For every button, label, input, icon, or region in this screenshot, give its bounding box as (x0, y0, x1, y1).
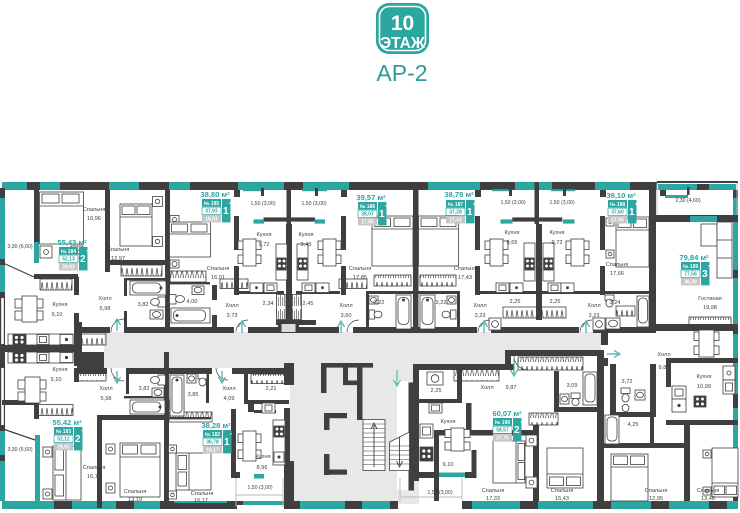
svg-text:Кухня: Кухня (53, 367, 68, 373)
svg-text:38,80 м2: 38,80 м2 (200, 190, 230, 199)
svg-text:*: * (229, 202, 231, 208)
svg-text:9,10: 9,10 (443, 462, 454, 468)
svg-text:4,25: 4,25 (628, 422, 639, 428)
svg-text:9,45: 9,45 (301, 242, 312, 248)
svg-text:46,39: 46,39 (684, 280, 697, 286)
svg-text:1,50 (3,00): 1,50 (3,00) (427, 490, 452, 496)
svg-text:17,66: 17,66 (610, 271, 624, 277)
svg-text:9,87: 9,87 (506, 385, 517, 391)
svg-text:9,89: 9,89 (659, 365, 670, 371)
svg-text:3,73: 3,73 (227, 313, 238, 319)
svg-text:9,65: 9,65 (507, 240, 518, 246)
svg-text:38,28 м2: 38,28 м2 (201, 421, 231, 430)
svg-text:3,23: 3,23 (475, 313, 486, 319)
svg-text:3,24: 3,24 (610, 300, 621, 306)
svg-text:16,17: 16,17 (206, 448, 219, 454)
svg-text:2,30 (4,60): 2,30 (4,60) (675, 198, 700, 204)
svg-text:Спальня: Спальня (107, 247, 129, 253)
svg-text:Спальня: Спальня (606, 262, 628, 268)
svg-text:№ 185: № 185 (204, 201, 220, 207)
svg-text:Спальня: Спальня (454, 266, 476, 272)
svg-text:Кухня: Кухня (256, 454, 271, 460)
svg-text:АР-2: АР-2 (376, 60, 427, 86)
svg-text:37,93: 37,93 (205, 209, 218, 215)
svg-text:№ 188: № 188 (610, 202, 626, 208)
svg-text:Холл: Холл (657, 352, 670, 358)
svg-text:*: * (635, 203, 637, 209)
svg-text:Кухня: Кухня (550, 230, 565, 236)
svg-text:39,10 м2: 39,10 м2 (606, 191, 636, 200)
svg-text:12,97: 12,97 (111, 256, 125, 262)
svg-text:Спальня: Спальня (645, 488, 667, 494)
svg-text:12,95: 12,95 (649, 496, 663, 502)
svg-text:№ 190: № 190 (495, 420, 511, 426)
svg-text:9,72: 9,72 (552, 240, 563, 246)
svg-text:29,92: 29,92 (57, 445, 70, 451)
svg-text:Гостиная: Гостиная (698, 296, 721, 302)
svg-text:1,50 (3,00): 1,50 (3,00) (250, 201, 275, 207)
svg-text:17,66: 17,66 (611, 218, 624, 224)
svg-text:1,50 (3,00): 1,50 (3,00) (301, 201, 326, 207)
svg-text:16,01: 16,01 (205, 217, 218, 223)
svg-text:15,43: 15,43 (555, 496, 569, 502)
svg-text:38,07: 38,07 (361, 212, 374, 218)
svg-text:Кухня: Кухня (441, 419, 456, 425)
svg-text:*: * (87, 250, 89, 256)
svg-text:Спальня: Спальня (482, 488, 504, 494)
svg-text:3,72: 3,72 (622, 379, 633, 385)
svg-text:52,13: 52,13 (62, 257, 75, 263)
svg-text:Холл: Холл (480, 385, 493, 391)
svg-text:29,93: 29,93 (62, 265, 75, 271)
svg-text:17,85: 17,85 (361, 220, 374, 226)
svg-text:39,57 м2: 39,57 м2 (356, 193, 386, 202)
svg-text:79,84 м2: 79,84 м2 (679, 253, 709, 262)
svg-text:3,22: 3,22 (436, 300, 447, 306)
svg-text:*: * (708, 265, 710, 271)
svg-text:2,25: 2,25 (431, 388, 442, 394)
svg-text:9,10: 9,10 (51, 377, 62, 383)
svg-text:58,57: 58,57 (496, 428, 509, 434)
svg-text:60,07 м2: 60,07 м2 (492, 409, 522, 418)
svg-text:9,72: 9,72 (259, 242, 270, 248)
svg-text:3,30 (6,60): 3,30 (6,60) (7, 244, 32, 250)
svg-text:Спальня: Спальня (551, 488, 573, 494)
svg-text:2,25: 2,25 (510, 299, 521, 305)
svg-text:Кухня: Кухня (257, 232, 272, 238)
svg-text:Холл: Холл (99, 386, 112, 392)
svg-text:2,34: 2,34 (263, 301, 274, 307)
svg-text:10: 10 (391, 12, 414, 35)
svg-text:77,56: 77,56 (684, 272, 697, 278)
svg-text:Спальня: Спальня (83, 207, 105, 213)
svg-text:16,73: 16,73 (87, 474, 101, 480)
svg-text:1,50 (3,00): 1,50 (3,00) (247, 485, 272, 491)
svg-text:17,85: 17,85 (353, 275, 367, 281)
svg-text:1,50 (3,00): 1,50 (3,00) (549, 200, 574, 206)
svg-text:2,45: 2,45 (303, 301, 314, 307)
svg-text:Холл: Холл (222, 386, 235, 392)
svg-text:Холл: Холл (473, 303, 486, 309)
svg-text:№ 183: № 183 (56, 429, 72, 435)
svg-text:3,60: 3,60 (341, 313, 352, 319)
svg-text:№ 182: № 182 (205, 432, 221, 438)
svg-text:10,99: 10,99 (697, 384, 711, 390)
svg-text:№ 186: № 186 (360, 204, 376, 210)
svg-text:Кухня: Кухня (53, 302, 68, 308)
svg-text:17,43: 17,43 (449, 218, 462, 224)
svg-text:16,96: 16,96 (87, 216, 101, 222)
svg-text:38,78 м2: 38,78 м2 (444, 190, 474, 199)
svg-text:3,82: 3,82 (139, 386, 150, 392)
svg-text:55,43 м2: 55,43 м2 (57, 238, 87, 247)
svg-text:55,42 м2: 55,42 м2 (52, 418, 82, 427)
svg-text:3,82: 3,82 (138, 302, 149, 308)
svg-text:36,78: 36,78 (206, 440, 219, 446)
svg-text:*: * (82, 430, 84, 436)
svg-text:Кухня: Кухня (697, 374, 712, 380)
svg-text:8,96: 8,96 (257, 465, 268, 471)
svg-text:Спальня: Спальня (83, 465, 105, 471)
svg-text:13,19: 13,19 (128, 497, 142, 503)
svg-text:3,22: 3,22 (374, 300, 385, 306)
svg-text:ЭТАЖ: ЭТАЖ (380, 35, 426, 52)
svg-text:Спальня: Спальня (207, 266, 229, 272)
svg-text:Холл: Холл (339, 303, 352, 309)
svg-text:*: * (521, 421, 523, 427)
svg-text:52,12: 52,12 (57, 437, 70, 443)
svg-text:№ 184: № 184 (61, 249, 77, 255)
svg-text:17,33: 17,33 (486, 496, 500, 502)
svg-text:5,98: 5,98 (101, 396, 112, 402)
svg-text:Спальня: Спальня (191, 491, 213, 497)
svg-text:4,00: 4,00 (187, 299, 198, 305)
svg-text:13,46: 13,46 (701, 496, 715, 502)
svg-text:Холл: Холл (225, 303, 238, 309)
svg-text:Спальня: Спальня (124, 489, 146, 495)
svg-text:2: 2 (75, 434, 81, 445)
svg-text:16,01: 16,01 (211, 275, 225, 281)
svg-text:Спальня: Спальня (697, 488, 719, 494)
svg-text:Кухня: Кухня (505, 230, 520, 236)
svg-text:*: * (230, 433, 232, 439)
svg-text:Спальня: Спальня (349, 266, 371, 272)
svg-text:19,98: 19,98 (703, 305, 717, 311)
svg-text:*: * (473, 203, 475, 209)
svg-text:2: 2 (514, 425, 520, 436)
svg-text:3,23: 3,23 (589, 313, 600, 319)
svg-text:3,30 (6,60): 3,30 (6,60) (7, 447, 32, 453)
svg-text:№ 189: № 189 (683, 264, 699, 270)
svg-text:5,98: 5,98 (100, 306, 111, 312)
svg-text:4,09: 4,09 (224, 396, 235, 402)
svg-text:Холл: Холл (98, 296, 111, 302)
svg-text:2,25: 2,25 (550, 299, 561, 305)
svg-text:*: * (385, 205, 387, 211)
svg-text:№ 187: № 187 (448, 202, 464, 208)
svg-text:2,21: 2,21 (266, 386, 277, 392)
svg-text:2: 2 (80, 254, 86, 265)
svg-text:3,85: 3,85 (188, 392, 199, 398)
svg-text:3,09: 3,09 (567, 383, 578, 389)
svg-text:37,75: 37,75 (496, 436, 509, 442)
svg-text:1,50 (3,00): 1,50 (3,00) (500, 200, 525, 206)
svg-text:37,60: 37,60 (611, 210, 624, 216)
svg-text:37,28: 37,28 (449, 210, 462, 216)
svg-text:16,17: 16,17 (194, 498, 208, 504)
svg-text:Кухня: Кухня (299, 232, 314, 238)
svg-text:17,43: 17,43 (458, 275, 472, 281)
svg-text:9,10: 9,10 (52, 312, 63, 318)
svg-text:Холл: Холл (587, 303, 600, 309)
